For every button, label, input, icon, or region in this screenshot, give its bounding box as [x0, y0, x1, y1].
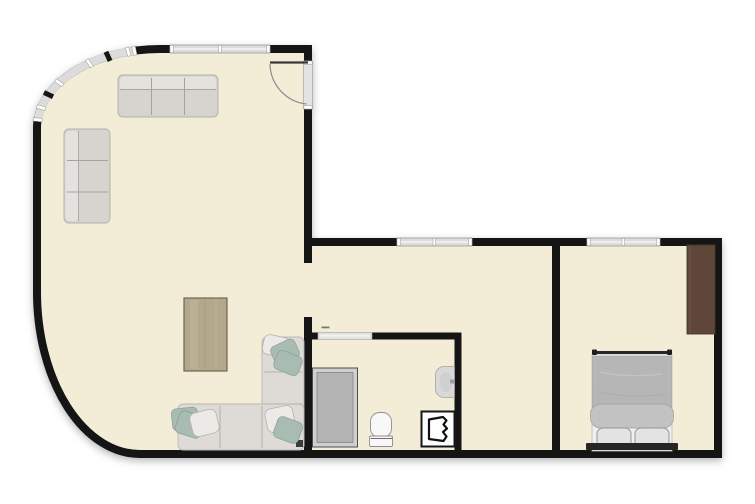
duvet-fold [591, 404, 674, 428]
shower [313, 368, 358, 447]
window-mullion-tick [33, 118, 42, 122]
bed-headboard [586, 443, 678, 450]
window-cap [170, 45, 173, 52]
sliding-door-handle [322, 327, 330, 329]
toilet-tank [370, 436, 393, 447]
window-cap [397, 238, 400, 245]
window-mullion-tick [433, 238, 436, 245]
bed-foot-post [667, 350, 672, 356]
wardrobe [687, 245, 715, 334]
floor-plan-canvas [0, 0, 755, 504]
hall-opening [303, 263, 313, 317]
shower-tray [317, 373, 353, 443]
window-cap [469, 238, 472, 245]
window-cap [587, 238, 590, 245]
floor-plan [0, 0, 755, 504]
sofa-backrest [66, 131, 79, 221]
table-grain [190, 300, 198, 369]
window-cap [657, 238, 660, 245]
building [33, 45, 718, 454]
window-cap [267, 45, 270, 52]
bed-foot-rail [594, 351, 670, 354]
washing-machine [422, 412, 455, 447]
bedroom-window [587, 238, 660, 246]
window-mullion-tick [219, 45, 222, 52]
coffee-table [184, 298, 227, 371]
living-room-window [170, 45, 270, 53]
wall-sink [436, 367, 456, 398]
door-frame-cap [304, 106, 312, 109]
double-bed [586, 350, 678, 452]
toilet [370, 413, 393, 447]
sofa-backrest [120, 77, 216, 90]
hall-window [397, 238, 472, 246]
sofa-three-seat-left [64, 129, 110, 223]
sink-tap [450, 380, 455, 384]
bed-foot-post [592, 350, 597, 356]
sofa-three-seat-top [118, 75, 218, 117]
window-mullion-tick [622, 238, 625, 245]
toilet-bowl [371, 413, 392, 438]
washer-icon [429, 417, 447, 441]
sliding-door-glass-line [320, 335, 370, 337]
entry-door-threshold [304, 61, 313, 109]
